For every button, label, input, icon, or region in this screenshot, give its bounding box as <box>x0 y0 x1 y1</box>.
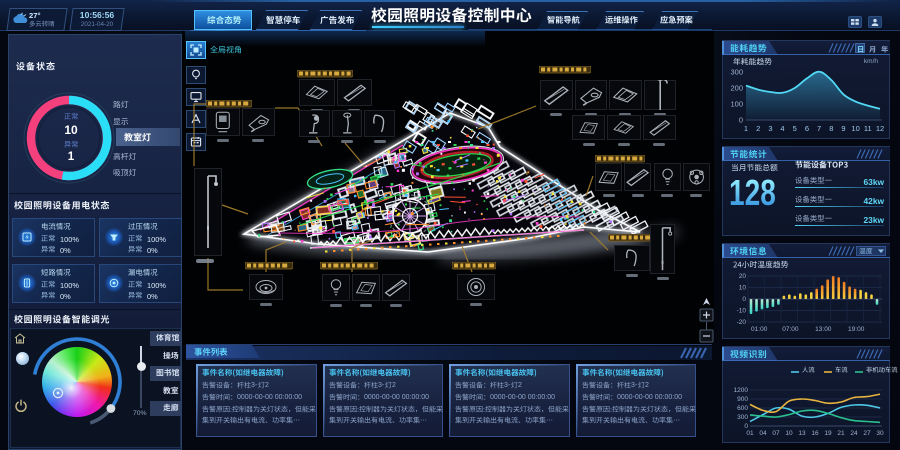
svg-text:01: 01 <box>746 430 754 437</box>
svg-text:100: 100 <box>730 100 743 109</box>
svg-text:6: 6 <box>805 124 809 133</box>
svg-text:300: 300 <box>737 414 748 421</box>
svg-text:-20: -20 <box>737 319 747 326</box>
svg-text:13: 13 <box>798 430 806 437</box>
svg-text:9: 9 <box>841 124 845 133</box>
svg-text:1200: 1200 <box>734 387 749 394</box>
svg-text:10: 10 <box>851 124 859 133</box>
svg-text:07: 07 <box>772 430 780 437</box>
svg-text:24: 24 <box>850 430 858 437</box>
svg-text:04: 04 <box>759 430 767 437</box>
svg-text:600: 600 <box>737 405 748 412</box>
svg-text:4: 4 <box>780 124 784 133</box>
svg-text:8: 8 <box>829 124 833 133</box>
svg-text:10: 10 <box>785 430 793 437</box>
svg-text:11: 11 <box>864 124 872 133</box>
svg-text:900: 900 <box>737 396 748 403</box>
svg-text:30: 30 <box>876 430 884 437</box>
svg-text:3: 3 <box>768 124 772 133</box>
svg-text:200: 200 <box>730 84 743 93</box>
svg-text:1: 1 <box>744 124 748 133</box>
svg-text:12: 12 <box>876 124 884 133</box>
svg-text:13:00: 13:00 <box>815 326 832 333</box>
svg-text:10: 10 <box>739 285 747 292</box>
svg-text:300: 300 <box>730 68 743 77</box>
svg-text:7: 7 <box>817 124 821 133</box>
svg-text:16: 16 <box>811 430 819 437</box>
svg-text:5: 5 <box>793 124 797 133</box>
svg-text:-10: -10 <box>737 308 747 315</box>
svg-text:19:00: 19:00 <box>848 326 865 333</box>
svg-text:2: 2 <box>756 124 760 133</box>
svg-text:0: 0 <box>744 423 748 430</box>
svg-text:27: 27 <box>863 430 871 437</box>
svg-text:01:00: 01:00 <box>751 326 768 333</box>
svg-text:21: 21 <box>837 430 845 437</box>
svg-text:07:00: 07:00 <box>782 326 799 333</box>
svg-text:19: 19 <box>824 430 832 437</box>
svg-text:0: 0 <box>739 116 743 125</box>
svg-text:20: 20 <box>739 273 747 280</box>
svg-text:0: 0 <box>742 296 746 303</box>
